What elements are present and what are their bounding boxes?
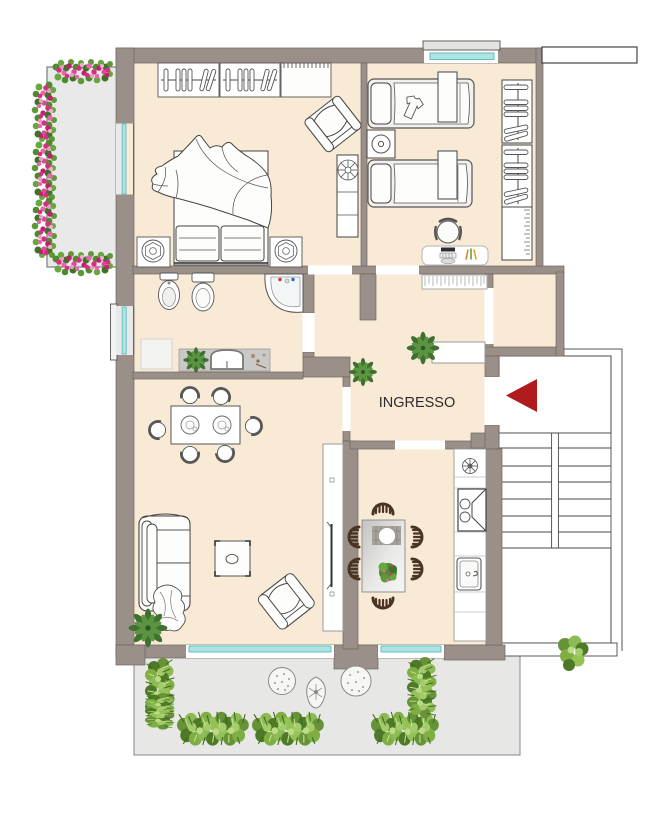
svg-text:INGRESSO: INGRESSO xyxy=(379,395,456,411)
